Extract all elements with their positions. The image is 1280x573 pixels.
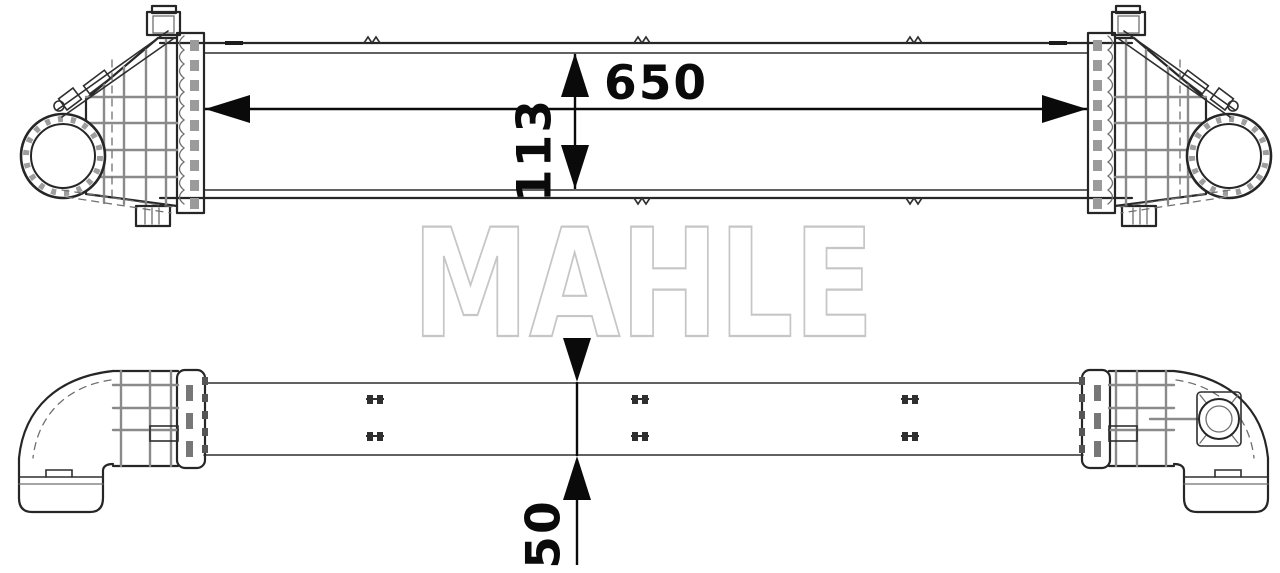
left-tank-front: [21, 6, 204, 226]
arrowhead-up: [563, 456, 591, 500]
top-view: 650 113: [21, 6, 1271, 226]
plate-dashes: [190, 40, 199, 209]
left-tank-plan: [19, 370, 208, 512]
arrowhead-right: [1042, 95, 1087, 123]
pipe-flange: [21, 114, 105, 198]
intercooler-drawing: MAHLE: [0, 0, 1280, 573]
right-tank-plan: [1079, 370, 1268, 512]
outlet-tab: [46, 470, 72, 477]
tank-grid: [86, 40, 177, 206]
tank-grid: [113, 371, 178, 466]
right-pipe-opening: [1150, 392, 1241, 446]
dimension-depth-label: 50: [517, 499, 572, 568]
core-plan: [204, 383, 1083, 455]
right-tank-front: [1088, 6, 1271, 226]
bottom-view: 50: [19, 338, 1268, 569]
clip-mark: [366, 395, 384, 441]
stay-rod: [54, 31, 173, 117]
technical-drawing-page: MAHLE: [0, 0, 1280, 573]
core-clips: [366, 395, 919, 441]
arrowhead-down: [561, 145, 589, 189]
dimension-width-650: 650: [205, 56, 1087, 123]
arrowhead-left: [205, 95, 250, 123]
clip-mark: [901, 395, 919, 441]
bottom-foot: [136, 206, 170, 226]
dimension-height-label: 113: [508, 98, 563, 202]
dimension-depth-50: 50: [517, 338, 592, 569]
elbow-pipe: [19, 371, 113, 512]
pipe-shading: [33, 380, 111, 458]
arrowhead-up: [561, 53, 589, 97]
dimension-height-113: 113: [508, 53, 590, 202]
top-bracket: [147, 6, 180, 35]
dimension-width-label: 650: [604, 56, 708, 111]
mahle-watermark: MAHLE: [412, 198, 874, 372]
clip-mark: [631, 395, 649, 441]
